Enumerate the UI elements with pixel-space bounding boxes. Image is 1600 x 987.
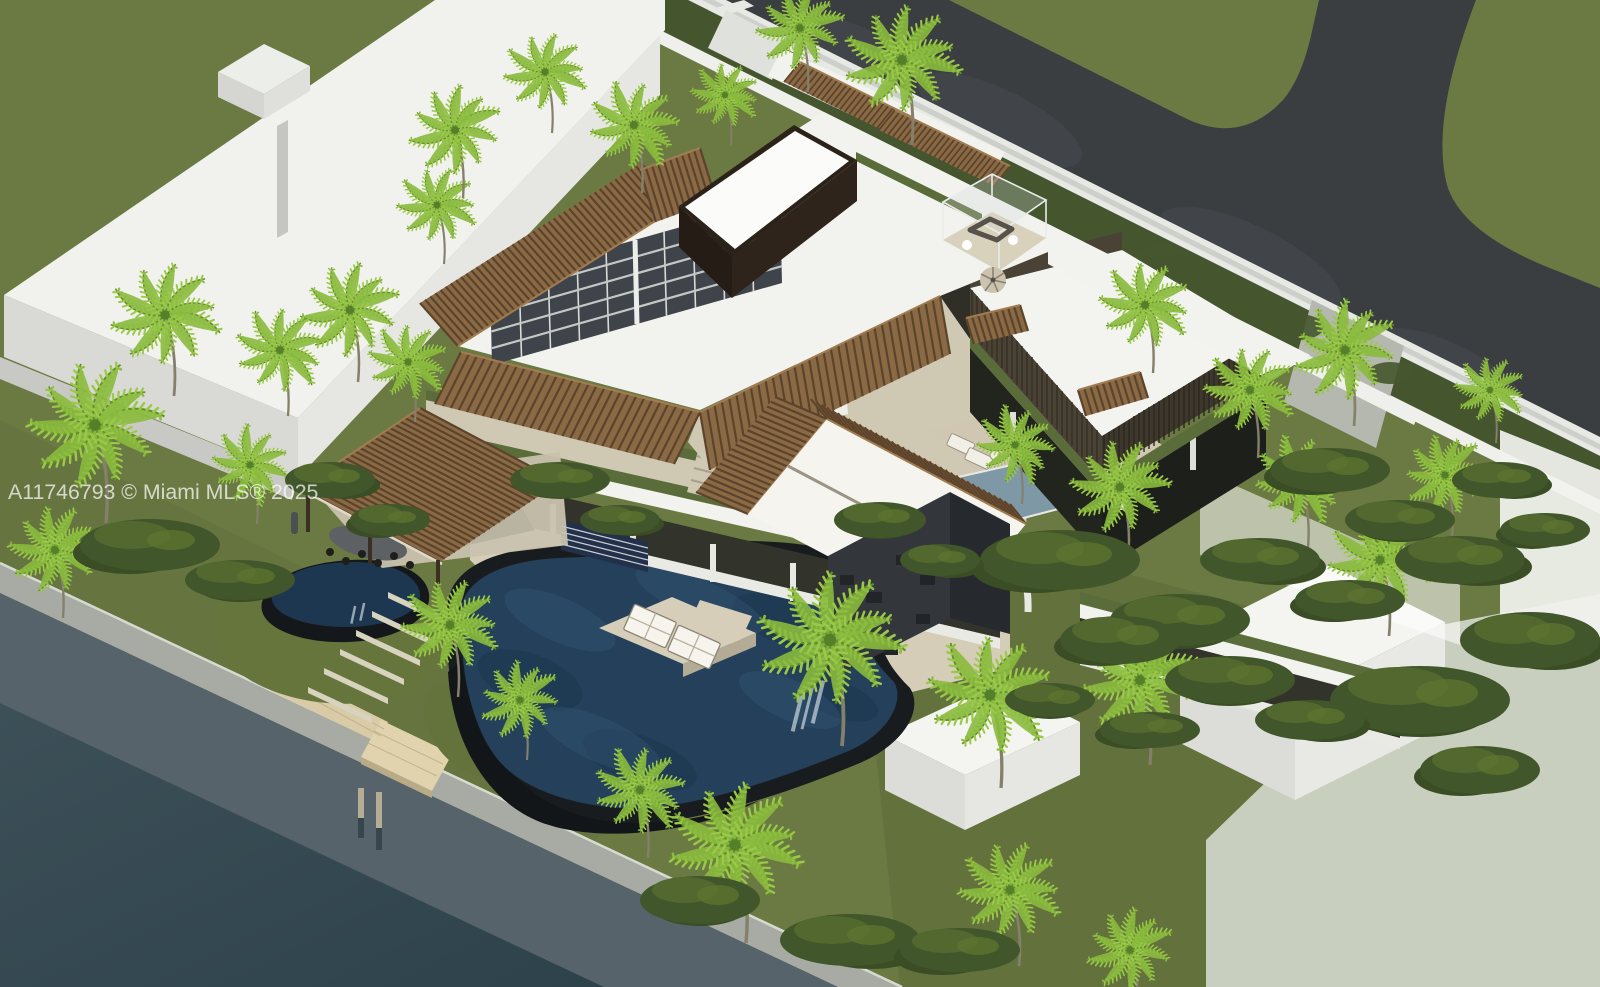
svg-text:A11746793 © Miami MLS® 2025: A11746793 © Miami MLS® 2025: [8, 480, 318, 504]
